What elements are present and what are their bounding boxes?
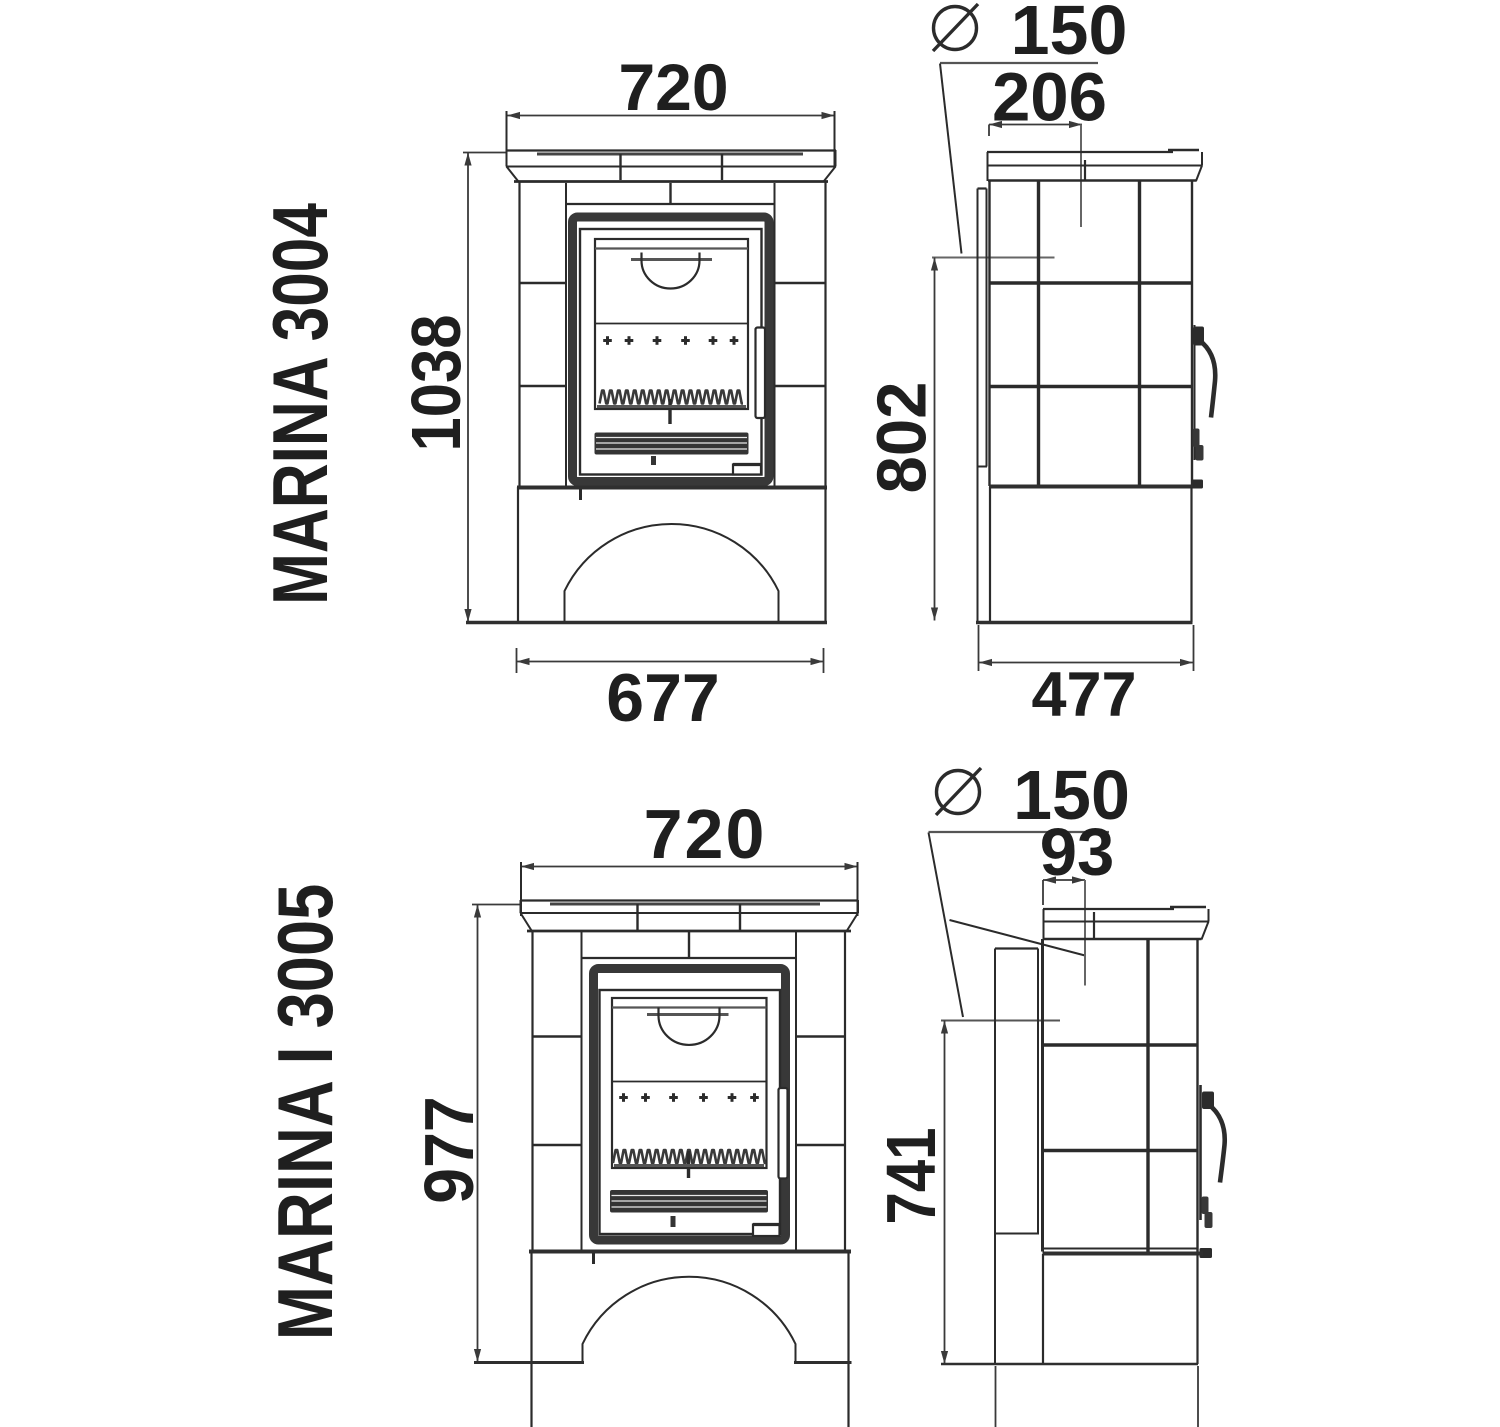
svg-text:477: 477 bbox=[1031, 660, 1136, 730]
svg-text:977: 977 bbox=[411, 1096, 489, 1203]
svg-text:677: 677 bbox=[606, 660, 719, 736]
svg-text:1038: 1038 bbox=[396, 314, 475, 451]
svg-text:741: 741 bbox=[872, 1128, 950, 1225]
svg-text:MARINA I 3005: MARINA I 3005 bbox=[262, 884, 349, 1341]
svg-text:MARINA 3004: MARINA 3004 bbox=[256, 203, 343, 605]
svg-text:720: 720 bbox=[618, 50, 728, 124]
svg-text:802: 802 bbox=[862, 381, 941, 493]
svg-text:720: 720 bbox=[644, 795, 767, 873]
